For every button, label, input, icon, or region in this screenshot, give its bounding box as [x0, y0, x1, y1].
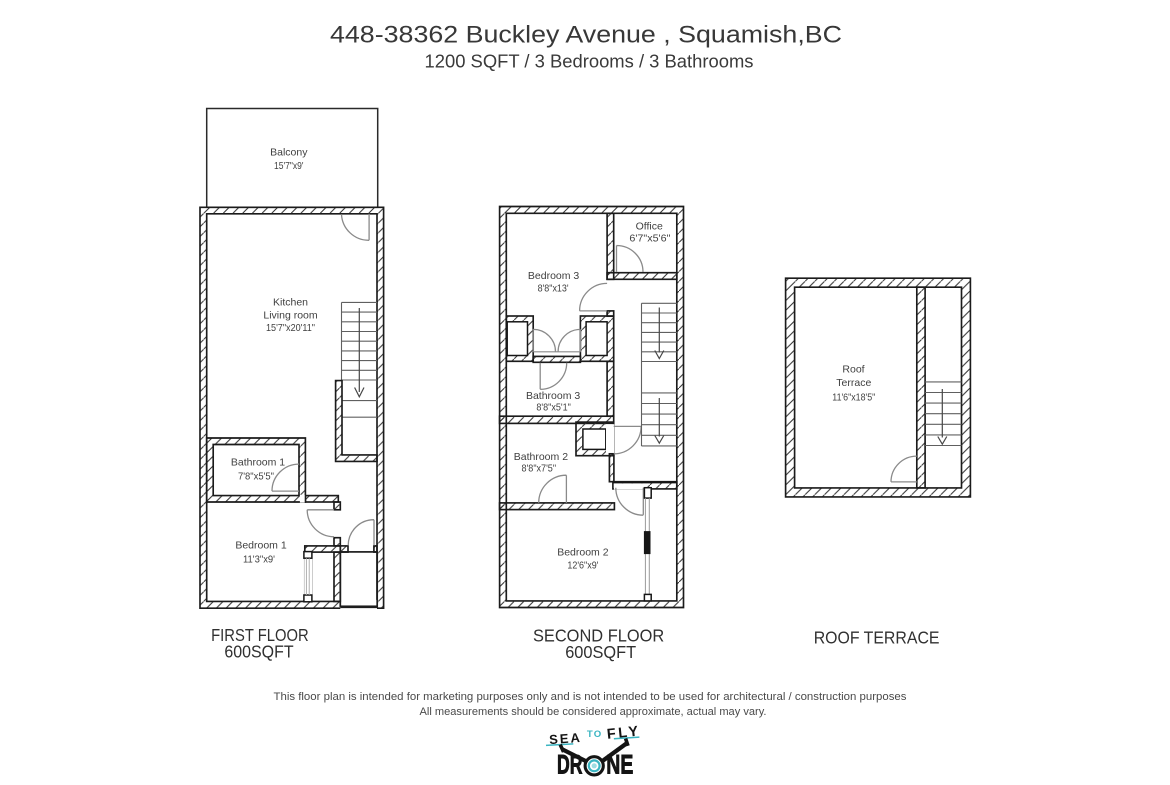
svg-text:8'8"x5'1": 8'8"x5'1" [536, 402, 571, 414]
svg-text:15'7"x20'11": 15'7"x20'11" [266, 322, 315, 334]
svg-text:Terrace: Terrace [836, 377, 871, 389]
svg-text:ROOF TERRACE: ROOF TERRACE [814, 628, 940, 648]
svg-text:Bathroom 3: Bathroom 3 [526, 390, 580, 402]
svg-text:12'6"x9': 12'6"x9' [567, 559, 598, 571]
svg-text:Bathroom 1: Bathroom 1 [231, 457, 285, 469]
svg-text:600SQFT: 600SQFT [565, 642, 636, 662]
svg-text:Roof: Roof [842, 363, 864, 375]
svg-text:DR: DR [557, 749, 583, 779]
svg-text:11'6"x18'5": 11'6"x18'5" [832, 392, 875, 404]
svg-text:TO: TO [587, 729, 603, 740]
svg-text:7'8"x5'5": 7'8"x5'5" [238, 471, 274, 483]
svg-text:Bedroom 1: Bedroom 1 [235, 540, 287, 552]
svg-text:6'7"x5'6": 6'7"x5'6" [629, 232, 670, 244]
svg-text:1200 SQFT / 3 Bedrooms / 3 Bat: 1200 SQFT / 3 Bedrooms / 3 Bathrooms [425, 52, 754, 72]
svg-text:11'3"x9': 11'3"x9' [243, 554, 275, 566]
svg-text:15'7"x9': 15'7"x9' [274, 160, 304, 172]
svg-text:This floor plan is intended fo: This floor plan is intended for marketin… [274, 691, 907, 703]
svg-text:Office: Office [636, 220, 663, 232]
svg-text:Balcony: Balcony [270, 146, 308, 158]
svg-text:600SQFT: 600SQFT [224, 641, 293, 661]
svg-text:Bathroom 2: Bathroom 2 [514, 451, 568, 463]
svg-text:Living room: Living room [263, 309, 318, 321]
svg-text:8'8"x7'5": 8'8"x7'5" [522, 463, 557, 475]
svg-text:8'8"x13': 8'8"x13' [538, 283, 569, 295]
svg-text:NE: NE [606, 749, 633, 779]
svg-text:Kitchen: Kitchen [273, 296, 308, 308]
svg-text:Bedroom 3: Bedroom 3 [528, 270, 580, 282]
svg-text:448-38362 Buckley Avenue , Squ: 448-38362 Buckley Avenue , Squamish,BC [330, 22, 842, 49]
svg-text:Bedroom 2: Bedroom 2 [557, 547, 609, 559]
svg-text:All measurements should be con: All measurements should be considered ap… [420, 706, 767, 718]
